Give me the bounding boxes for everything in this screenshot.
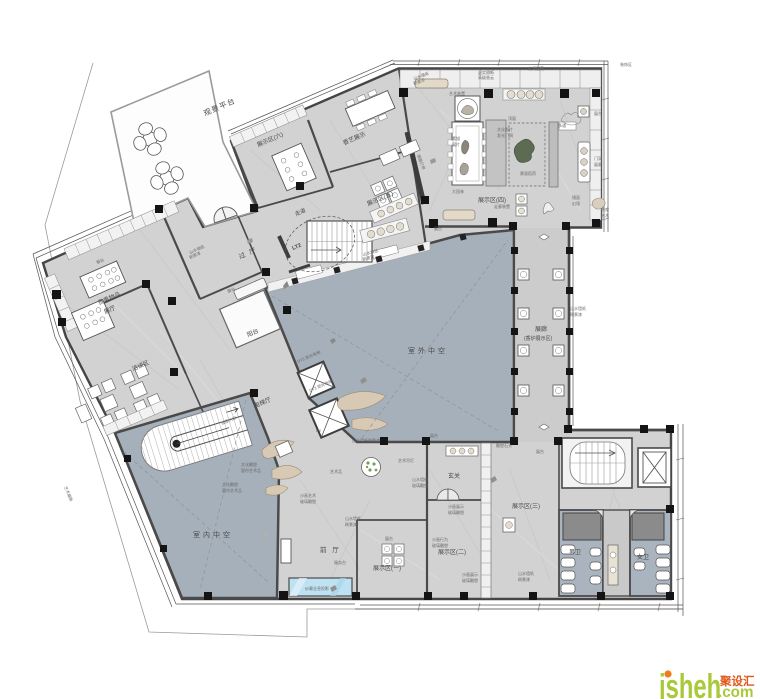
svg-text:男卫: 男卫: [569, 549, 581, 556]
svg-text:大园林: 大园林: [452, 188, 464, 194]
svg-text:展示区(四): 展示区(四): [478, 197, 506, 204]
svg-text:走廊装置: 走廊装置: [494, 203, 510, 209]
svg-text:展示区(一): 展示区(一): [373, 565, 401, 572]
svg-text:多通: 多通: [558, 122, 566, 128]
svg-text:香席: 香席: [601, 206, 609, 212]
svg-text:室内中空: 室内中空: [193, 530, 233, 539]
svg-text:玻璃雕塑: 玻璃雕塑: [462, 577, 478, 583]
svg-text:门洞: 门洞: [594, 155, 602, 161]
svg-text:聚设汇: 聚设汇: [719, 674, 755, 688]
svg-text:展台: 展台: [594, 110, 602, 116]
svg-text:素描: 素描: [452, 135, 460, 141]
svg-text:展片: 展片: [452, 141, 460, 147]
svg-text:展廊: 展廊: [535, 325, 547, 333]
svg-text:刷景漆: 刷景漆: [518, 576, 530, 582]
svg-text:展示区(二): 展示区(二): [438, 549, 466, 556]
svg-text:景观稻荷: 景观稻荷: [520, 170, 536, 176]
svg-text:山水墙纸刷景漆: 山水墙纸刷景漆: [352, 437, 380, 443]
svg-text:艺术吊灯: 艺术吊灯: [398, 457, 414, 463]
svg-text:山水墙纸: 山水墙纸: [518, 570, 534, 576]
svg-text:沙画艺术: 沙画艺术: [300, 492, 316, 498]
svg-text:服务台: 服务台: [334, 559, 346, 565]
svg-text:展示区(三): 展示区(三): [512, 503, 540, 510]
svg-text:文化雕塑: 文化雕塑: [222, 481, 238, 487]
svg-text:沙画展示: 沙画展示: [448, 503, 464, 509]
svg-text:窗帘艺术品: 窗帘艺术品: [241, 467, 261, 473]
svg-text:镜面: 镜面: [572, 194, 580, 200]
svg-text:幻境: 幻境: [572, 200, 580, 206]
svg-text:展台: 展台: [536, 448, 544, 454]
svg-text:沙画行为: 沙画行为: [432, 536, 448, 542]
svg-text:沙画展示: 沙画展示: [462, 571, 478, 577]
svg-text:幻须蘑菇: 幻须蘑菇: [528, 65, 544, 71]
svg-text:玄关: 玄关: [448, 472, 460, 480]
svg-text:高级香云: 高级香云: [478, 74, 494, 80]
svg-text:雕塑石头: 雕塑石头: [496, 442, 512, 448]
svg-text:装饰区: 装饰区: [620, 61, 632, 67]
svg-text:艺术品: 艺术品: [330, 468, 342, 474]
svg-text:展台: 展台: [434, 225, 442, 231]
svg-text:发光门洞: 发光门洞: [497, 132, 513, 138]
svg-text:玻璃雕塑: 玻璃雕塑: [412, 482, 428, 488]
svg-text:窗帘艺术品: 窗帘艺术品: [222, 487, 242, 493]
svg-text:刷景漆: 刷景漆: [570, 311, 582, 317]
svg-text:(香炉展示区): (香炉展示区): [524, 335, 553, 342]
svg-text:室外中空: 室外中空: [408, 346, 448, 355]
svg-text:玻璃雕塑: 玻璃雕塑: [300, 498, 316, 504]
svg-text:山水墙纸: 山水墙纸: [570, 305, 586, 311]
svg-text:前 厅: 前 厅: [320, 545, 341, 554]
svg-text:展台: 展台: [430, 432, 438, 438]
svg-text:刷景漆: 刷景漆: [345, 521, 357, 527]
svg-text:艺术装置: 艺术装置: [449, 90, 465, 96]
svg-text:顶窗: 顶窗: [508, 115, 516, 121]
svg-text:山水墙纸: 山水墙纸: [345, 515, 361, 521]
svg-text:女卫: 女卫: [637, 553, 649, 561]
svg-text:纱幕全息投影: 纱幕全息投影: [305, 585, 329, 591]
svg-text:山水墙纸: 山水墙纸: [412, 476, 428, 482]
svg-text:玻璃雕塑: 玻璃雕塑: [432, 542, 448, 548]
svg-text:艺术: 艺术: [601, 212, 609, 218]
svg-text:展廊: 展廊: [594, 161, 602, 167]
svg-text:玻璃雕塑: 玻璃雕塑: [448, 509, 464, 515]
svg-text:文化图片: 文化图片: [497, 126, 513, 132]
svg-text:展台: 展台: [385, 535, 393, 541]
svg-text:PY: PY: [316, 428, 322, 433]
svg-text:文化雕塑: 文化雕塑: [241, 461, 257, 467]
